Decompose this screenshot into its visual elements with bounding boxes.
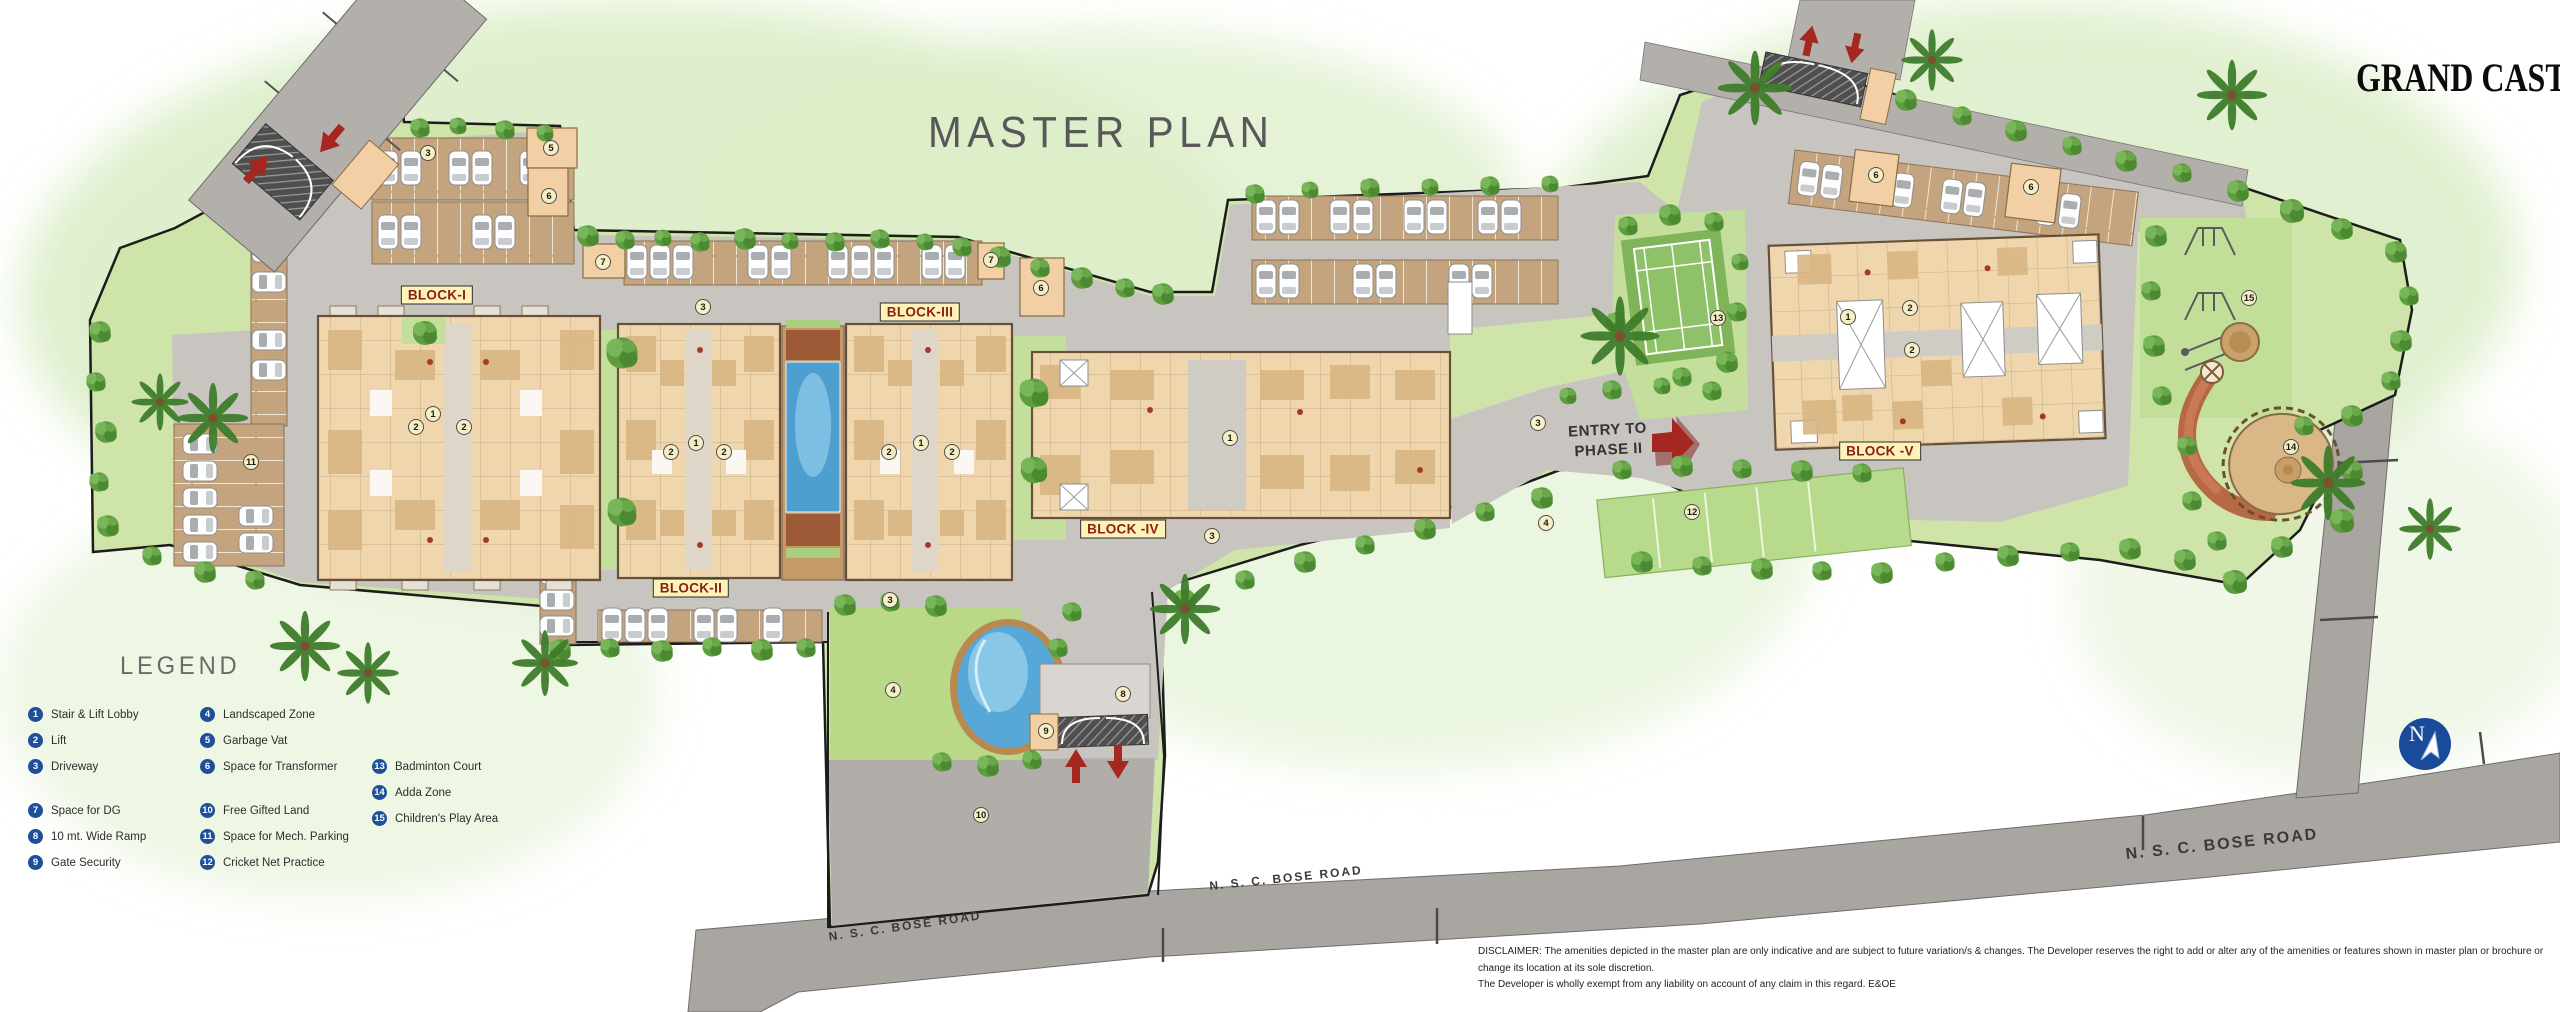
map-marker: 2	[881, 444, 897, 460]
legend-item: 5 Garbage Vat	[200, 733, 372, 748]
legend-number-badge: 14	[372, 785, 387, 800]
legend-item-label: Space for Mech. Parking	[223, 831, 349, 843]
legend-item: 2 Lift	[28, 733, 200, 748]
block-label: BLOCK -V	[1839, 442, 1921, 461]
map-marker: 1	[1840, 309, 1856, 325]
map-marker: 15	[2241, 290, 2257, 306]
legend-item: 11 Space for Mech. Parking	[200, 829, 372, 844]
map-marker: 1	[425, 406, 441, 422]
map-marker: 3	[882, 592, 898, 608]
map-marker: 6	[2023, 179, 2039, 195]
map-marker: 4	[1538, 515, 1554, 531]
legend-number-badge: 5	[200, 733, 215, 748]
legend-item: 8 10 mt. Wide Ramp	[28, 829, 200, 844]
map-marker: 6	[541, 188, 557, 204]
map-marker: 3	[695, 299, 711, 315]
block-label: BLOCK-III	[880, 303, 960, 322]
legend-number-badge: 13	[372, 759, 387, 774]
legend-item-label: Gate Security	[51, 857, 121, 869]
disclaimer: DISCLAIMER: The amenities depicted in th…	[1478, 944, 2544, 994]
map-marker: 4	[885, 682, 901, 698]
map-marker: 1	[913, 435, 929, 451]
block-2-building	[618, 324, 780, 578]
legend-number-badge: 3	[28, 759, 43, 774]
legend-item: 1 Stair & Lift Lobby	[28, 707, 200, 722]
map-marker: 3	[1204, 528, 1220, 544]
legend-number-badge: 1	[28, 707, 43, 722]
legend-item-label: Lift	[51, 735, 66, 747]
swimming-pool	[782, 320, 844, 580]
page-title: MASTER PLAN	[928, 108, 1274, 158]
disclaimer-line-1: DISCLAIMER: The amenities depicted in th…	[1478, 944, 2544, 977]
legend-item: 12 Cricket Net Practice	[200, 855, 372, 870]
map-marker: 7	[983, 252, 999, 268]
legend-number-badge: 12	[200, 855, 215, 870]
map-marker: 6	[1868, 167, 1884, 183]
map-marker: 2	[944, 444, 960, 460]
legend-number-badge: 6	[200, 759, 215, 774]
legend-item-label: Space for Transformer	[223, 761, 337, 773]
block-label: BLOCK-I	[401, 286, 473, 305]
entry-phase2-label: ENTRY TO PHASE II	[1568, 418, 1649, 461]
legend-item-label: Space for DG	[51, 805, 121, 817]
legend-item-label: 10 mt. Wide Ramp	[51, 831, 146, 843]
legend-item: 14 Adda Zone	[372, 785, 582, 800]
block-label: BLOCK-II	[653, 579, 729, 598]
legend-item: 10 Free Gifted Land	[200, 803, 372, 818]
map-marker: 10	[973, 807, 989, 823]
legend-number-badge: 10	[200, 803, 215, 818]
map-marker: 1	[688, 435, 704, 451]
badminton-court	[1621, 228, 1736, 365]
block-5-building	[1769, 234, 2106, 449]
north-letter: N	[2409, 721, 2425, 747]
north-indicator: N	[2399, 718, 2451, 770]
map-marker: 5	[543, 140, 559, 156]
block-1-building	[318, 306, 600, 590]
legend-number-badge: 4	[200, 707, 215, 722]
block-label: BLOCK -IV	[1080, 520, 1166, 539]
legend-number-badge: 11	[200, 829, 215, 844]
legend-item: 15 Children's Play Area	[372, 811, 582, 826]
block-3-building	[846, 324, 1012, 580]
legend-item-label: Garbage Vat	[223, 735, 287, 747]
legend-item-label: Free Gifted Land	[223, 805, 309, 817]
legend-item: 13 Badminton Court	[372, 759, 582, 774]
legend-number-badge: 2	[28, 733, 43, 748]
map-marker: 7	[595, 254, 611, 270]
entry-phase2-line2: PHASE II	[1569, 438, 1649, 462]
brand-logo: GRAND CASTLE	[2356, 54, 2560, 101]
legend-item: 3 Driveway	[28, 759, 200, 774]
map-marker: 14	[2283, 439, 2299, 455]
legend-column-1: 1 Stair & Lift Lobby 2 Lift 3 Driveway 7…	[28, 707, 200, 881]
legend-number-badge: 8	[28, 829, 43, 844]
map-marker: 3	[1530, 415, 1546, 431]
legend-number-badge: 15	[372, 811, 387, 826]
map-marker: 2	[1902, 300, 1918, 316]
map-marker: 11	[243, 454, 259, 470]
disclaimer-line-2: The Developer is wholly exempt from any …	[1478, 977, 2544, 994]
legend-item: 9 Gate Security	[28, 855, 200, 870]
legend-item-label: Adda Zone	[395, 787, 451, 799]
legend-item-label: Stair & Lift Lobby	[51, 709, 139, 721]
map-marker: 3	[420, 145, 436, 161]
map-marker: 6	[1033, 280, 1049, 296]
legend-column-2: 4 Landscaped Zone 5 Garbage Vat 6 Space …	[200, 707, 372, 881]
map-marker: 2	[1904, 342, 1920, 358]
legend-number-badge: 9	[28, 855, 43, 870]
legend-column-3: 13 Badminton Court 14 Adda Zone 15 Child…	[372, 707, 582, 881]
legend-item: 4 Landscaped Zone	[200, 707, 372, 722]
north-arrow-icon	[2399, 718, 2451, 770]
master-plan-page: { "header": { "title": "MASTER PLAN", "b…	[0, 0, 2560, 1012]
legend-number-badge: 7	[28, 803, 43, 818]
map-marker: 13	[1710, 310, 1726, 326]
map-marker: 8	[1115, 686, 1131, 702]
map-marker: 1	[1222, 430, 1238, 446]
legend: LEGEND 1 Stair & Lift Lobby 2 Lift 3 Dri…	[28, 652, 668, 881]
legend-item-label: Cricket Net Practice	[223, 857, 325, 869]
map-marker: 2	[663, 444, 679, 460]
map-marker: 2	[456, 419, 472, 435]
legend-item-label: Children's Play Area	[395, 813, 498, 825]
legend-item-label: Driveway	[51, 761, 98, 773]
map-marker: 2	[716, 444, 732, 460]
legend-item-label: Landscaped Zone	[223, 709, 315, 721]
legend-heading: LEGEND	[120, 652, 641, 681]
map-marker: 9	[1038, 723, 1054, 739]
legend-item: 7 Space for DG	[28, 803, 200, 818]
map-marker: 2	[408, 419, 424, 435]
legend-item-label: Badminton Court	[395, 761, 481, 773]
legend-item: 6 Space for Transformer	[200, 759, 372, 774]
map-marker: 12	[1684, 504, 1700, 520]
